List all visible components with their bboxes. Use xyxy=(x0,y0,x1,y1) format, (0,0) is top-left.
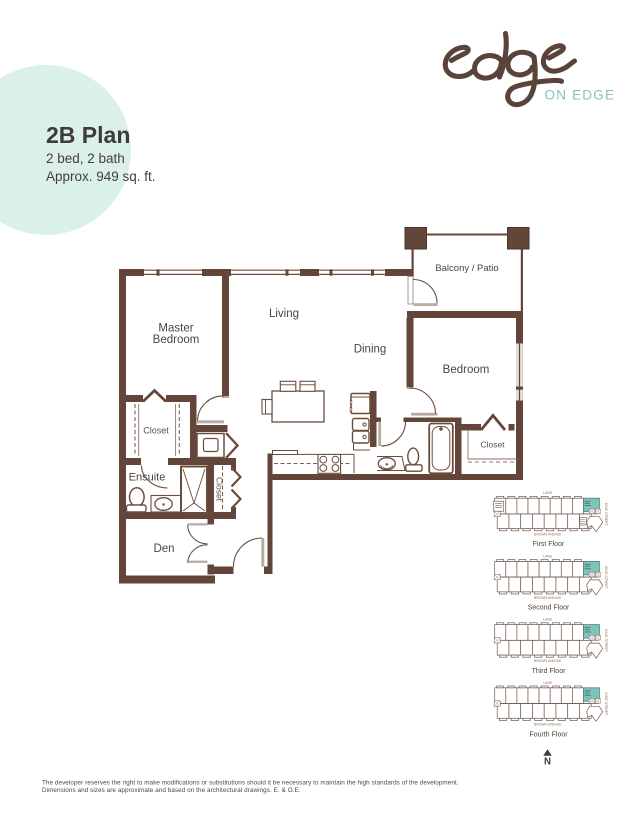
svg-text:Second Floor: Second Floor xyxy=(528,605,570,612)
svg-text:2 bed, 2 bath: 2 bed, 2 bath xyxy=(46,151,125,166)
svg-text:Ensuite: Ensuite xyxy=(129,472,166,484)
svg-text:The developer reserves the rig: The developer reserves the right to make… xyxy=(42,780,459,787)
svg-text:N: N xyxy=(544,757,551,768)
svg-text:Balcony / Patio: Balcony / Patio xyxy=(435,263,498,274)
svg-text:Living: Living xyxy=(269,308,299,320)
svg-text:Third Floor: Third Floor xyxy=(532,668,567,675)
svg-text:Closet: Closet xyxy=(215,477,225,502)
svg-text:Dining: Dining xyxy=(354,344,387,356)
svg-text:Bedroom: Bedroom xyxy=(153,334,200,346)
svg-text:ON EDGE: ON EDGE xyxy=(545,88,616,103)
svg-text:Den: Den xyxy=(153,543,174,555)
svg-text:Dimensions and sizes are appro: Dimensions and sizes are approximate and… xyxy=(42,787,301,794)
svg-text:Fourth Floor: Fourth Floor xyxy=(529,732,568,739)
svg-text:Approx. 949 sq. ft.: Approx. 949 sq. ft. xyxy=(46,169,156,184)
svg-text:Master: Master xyxy=(158,323,193,335)
svg-text:2B Plan: 2B Plan xyxy=(46,122,130,148)
svg-text:Closet: Closet xyxy=(480,440,505,450)
svg-text:Closet: Closet xyxy=(143,426,169,436)
svg-text:Bedroom: Bedroom xyxy=(443,364,490,376)
svg-text:First Floor: First Floor xyxy=(533,541,565,548)
